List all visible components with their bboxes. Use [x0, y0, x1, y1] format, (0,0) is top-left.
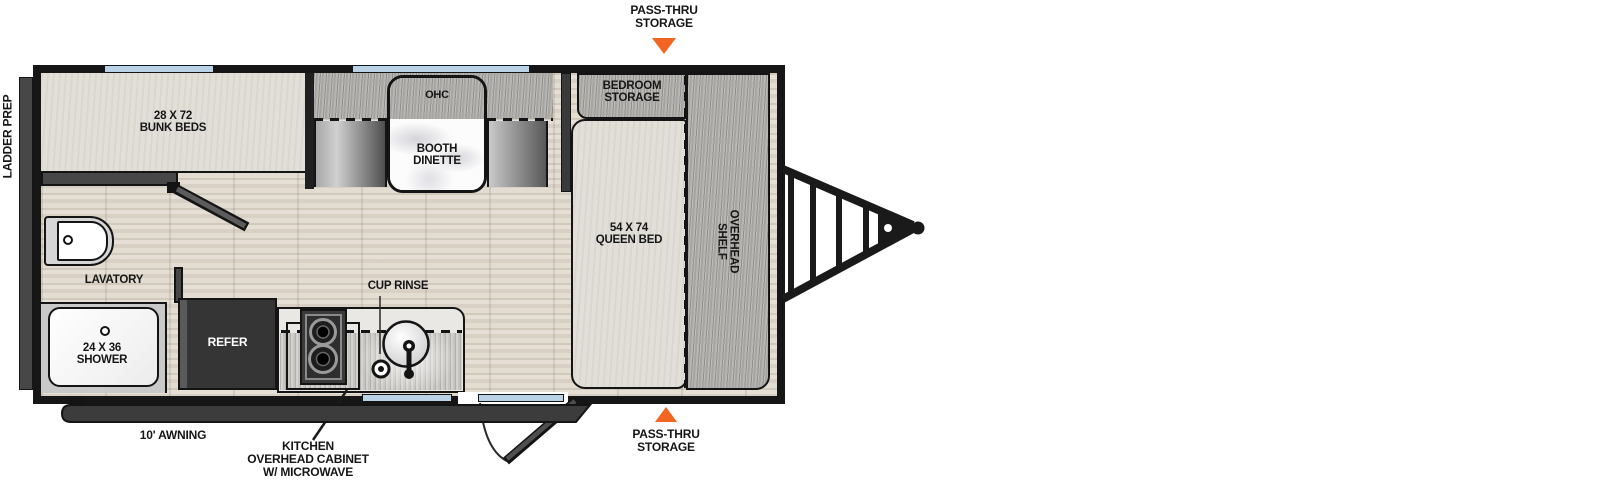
cooktop — [300, 309, 347, 385]
dinette-wall-left — [305, 73, 314, 189]
queen-bed-label: 54 X 74QUEEN BED — [571, 222, 687, 247]
pass-thru-bottom-label: PASS-THRUSTORAGE — [606, 428, 726, 454]
bath-door-hinge — [167, 182, 180, 193]
ohc-dashed-right — [487, 118, 553, 121]
cooktop-panel — [305, 314, 342, 380]
window-front-top — [104, 65, 214, 73]
shower-drain — [100, 326, 110, 336]
cup-rinse-label: CUP RINSE — [348, 280, 448, 292]
pass-thru-arrow-up-icon — [655, 407, 677, 422]
overhead-shelf-label: OVERHEADSHELF — [715, 181, 740, 301]
shower-label: 24 X 36SHOWER — [42, 342, 162, 367]
bedroom-wall — [561, 73, 571, 192]
pass-thru-arrow-down-icon — [652, 38, 676, 54]
booth-dinette-label: BOOTHDINETTE — [387, 143, 487, 168]
window-galley-bottom — [362, 394, 452, 402]
entry-door-window — [478, 394, 564, 402]
hitch-tongue — [783, 169, 925, 299]
ladder-prep-wall — [19, 77, 33, 390]
floorplan-canvas: LADDER PREP 28 X 72BUNK BEDS LAVATORY 24… — [0, 0, 1600, 484]
ohc-dashed-left — [314, 118, 387, 121]
queen-bed — [571, 119, 687, 389]
kitchen-ohc-label: KITCHENOVERHEAD CABINETW/ MICROWAVE — [228, 440, 388, 479]
toilet-flush-button — [63, 235, 73, 245]
ladder-prep-label: LADDER PREP — [2, 86, 15, 186]
dinette-bench-left — [314, 121, 387, 187]
bath-wall-horizontal — [41, 171, 178, 186]
awning-label: 10' AWNING — [113, 429, 233, 442]
entry-door — [480, 400, 577, 462]
dinette-bench-right — [487, 121, 548, 187]
bedroom-storage-label: BEDROOMSTORAGE — [577, 80, 687, 105]
refer-label: REFER — [178, 336, 277, 349]
ohc-label: OHC — [387, 90, 487, 102]
lavatory-label: LAVATORY — [64, 274, 164, 286]
pass-thru-top-label: PASS-THRUSTORAGE — [604, 4, 724, 30]
bunk-beds-label: 28 X 72BUNK BEDS — [41, 110, 305, 135]
window-dinette-top — [352, 65, 530, 73]
